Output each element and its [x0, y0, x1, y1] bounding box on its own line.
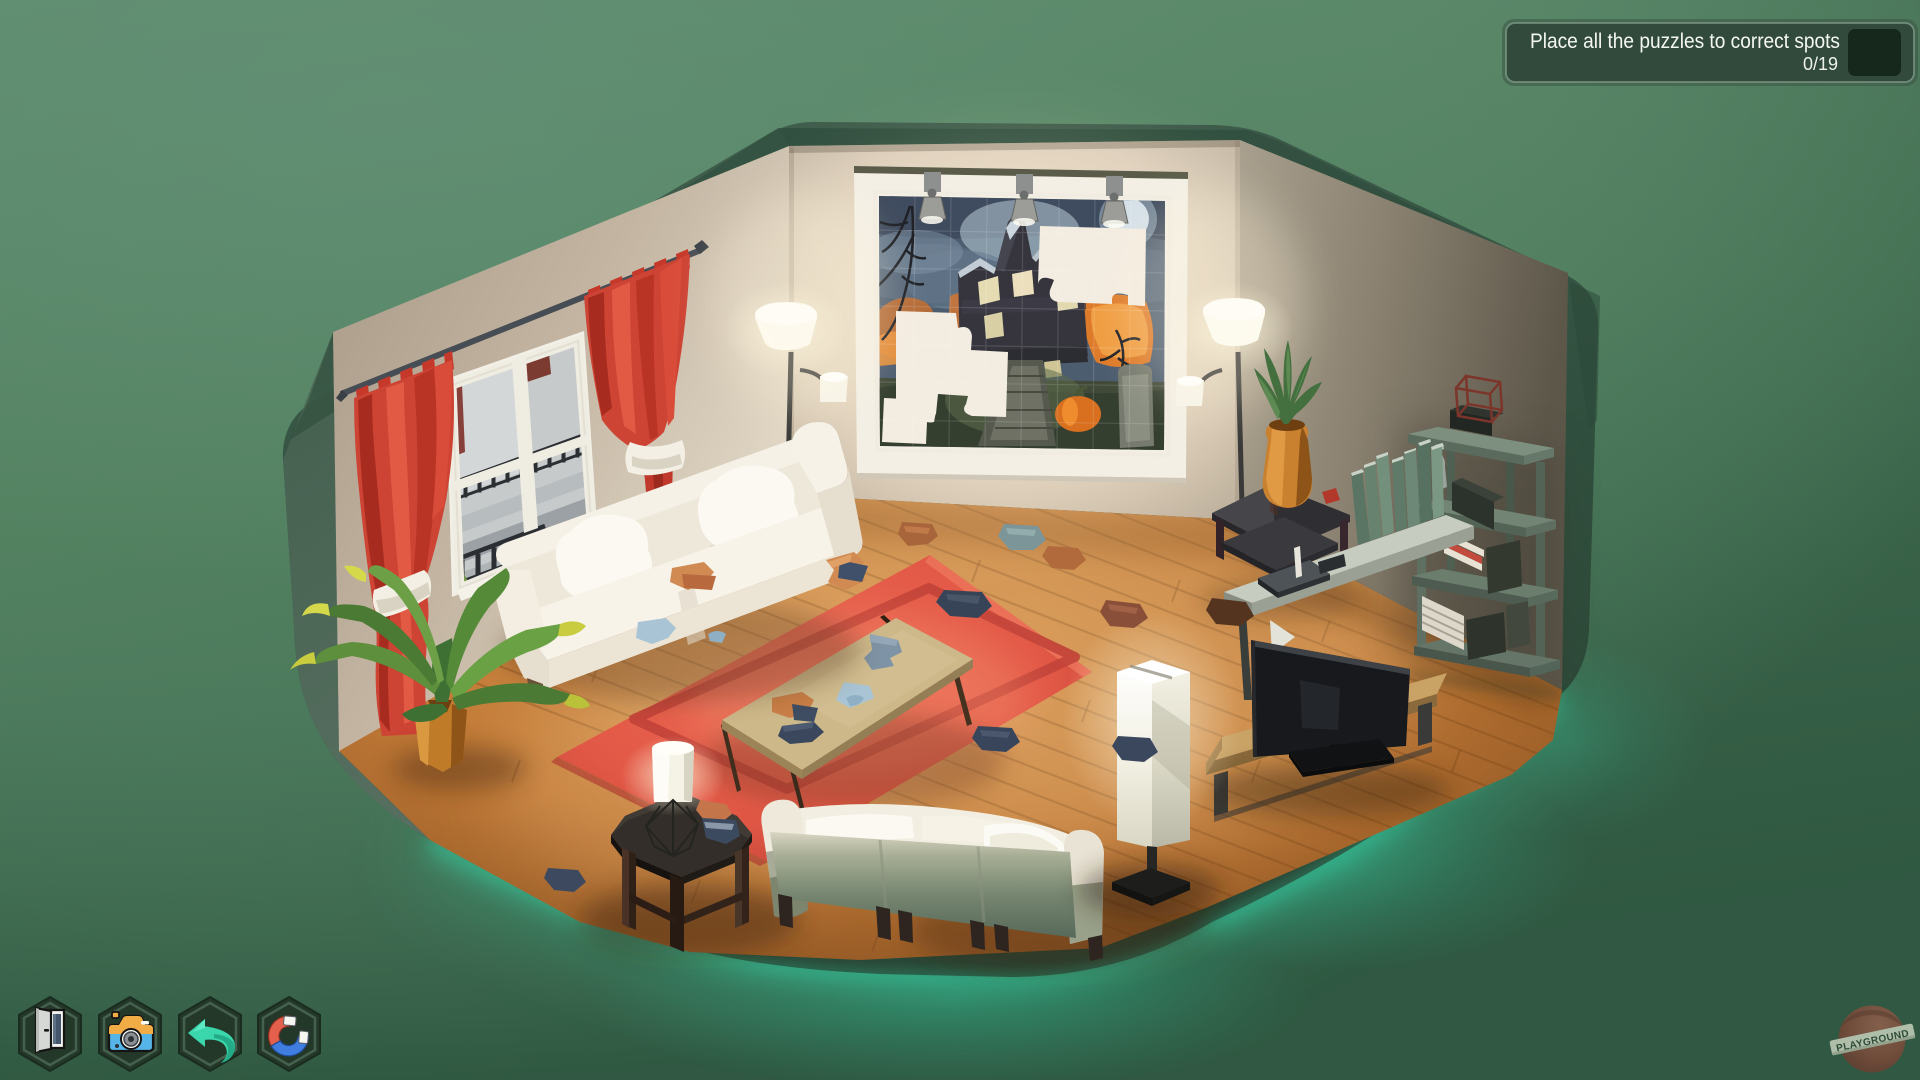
- svg-text:0/19: 0/19: [1803, 54, 1838, 74]
- svg-text:Place all the puzzles to corre: Place all the puzzles to correct spots: [1530, 30, 1840, 53]
